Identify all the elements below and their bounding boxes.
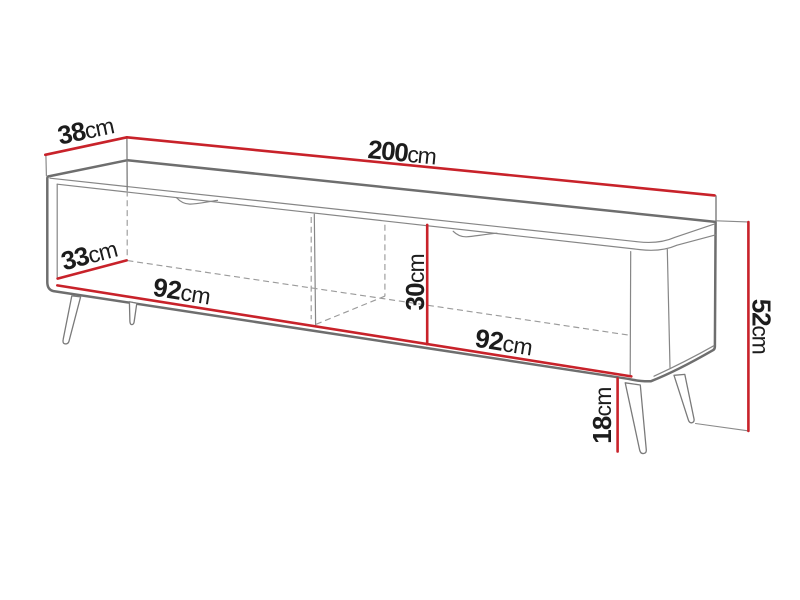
- svg-text:30cm: 30cm: [400, 254, 430, 310]
- svg-text:52cm: 52cm: [746, 299, 776, 354]
- svg-text:18cm: 18cm: [587, 387, 617, 443]
